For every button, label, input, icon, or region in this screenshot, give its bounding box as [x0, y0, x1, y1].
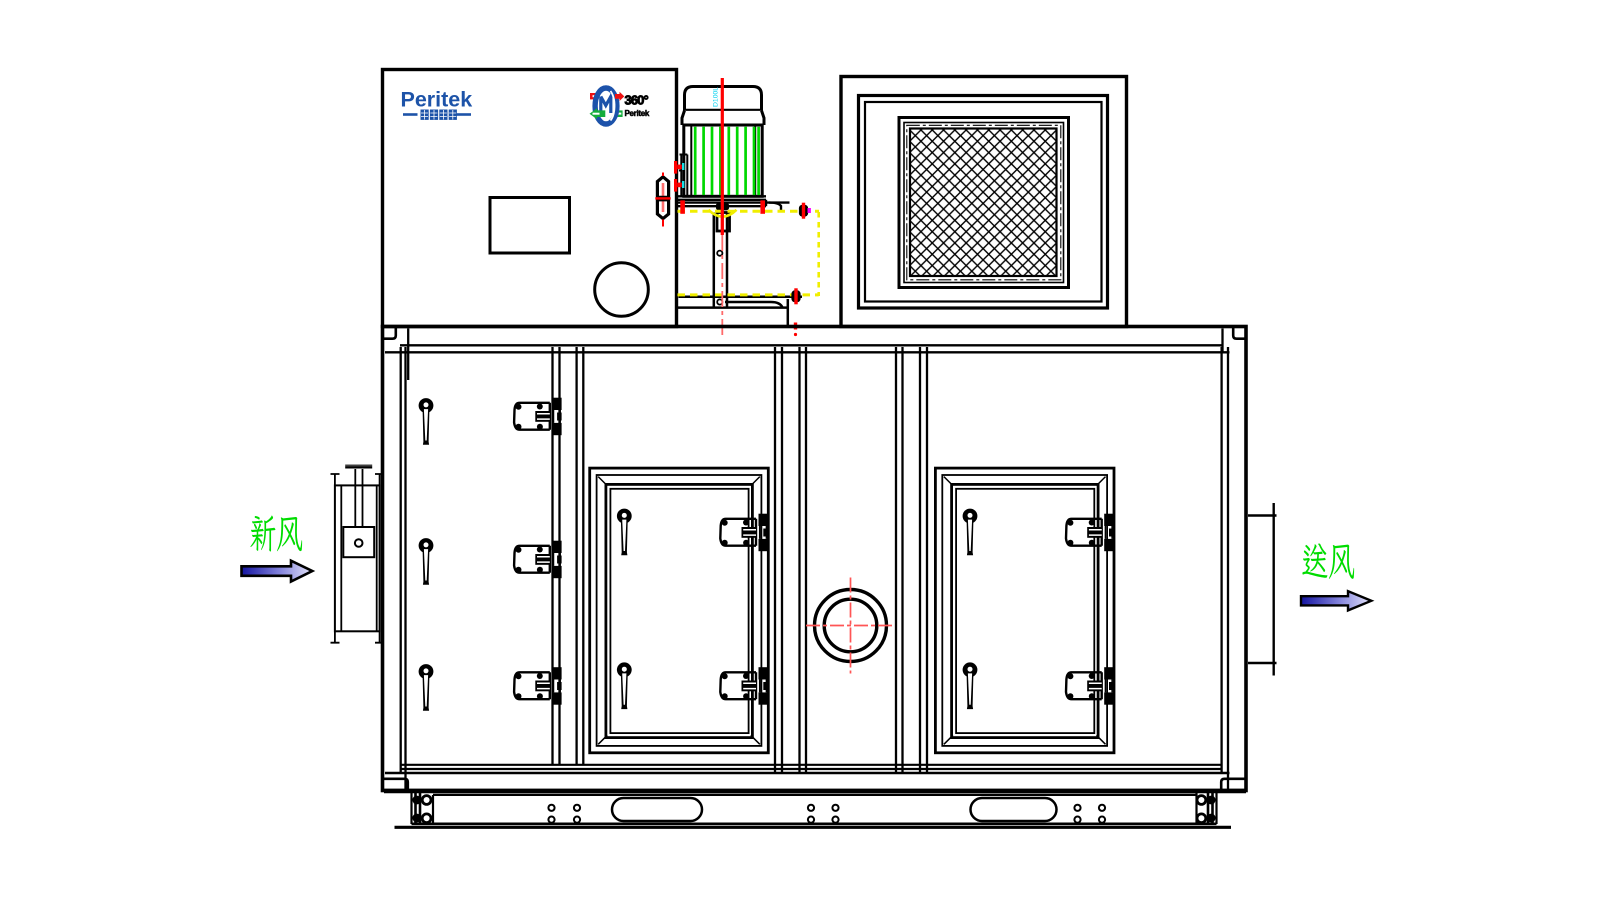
svg-text:Peritek: Peritek [625, 109, 650, 118]
svg-text:Peritek: Peritek [401, 88, 473, 112]
svg-text:360°: 360° [625, 93, 649, 108]
svg-text:D100L: D100L [713, 87, 720, 107]
